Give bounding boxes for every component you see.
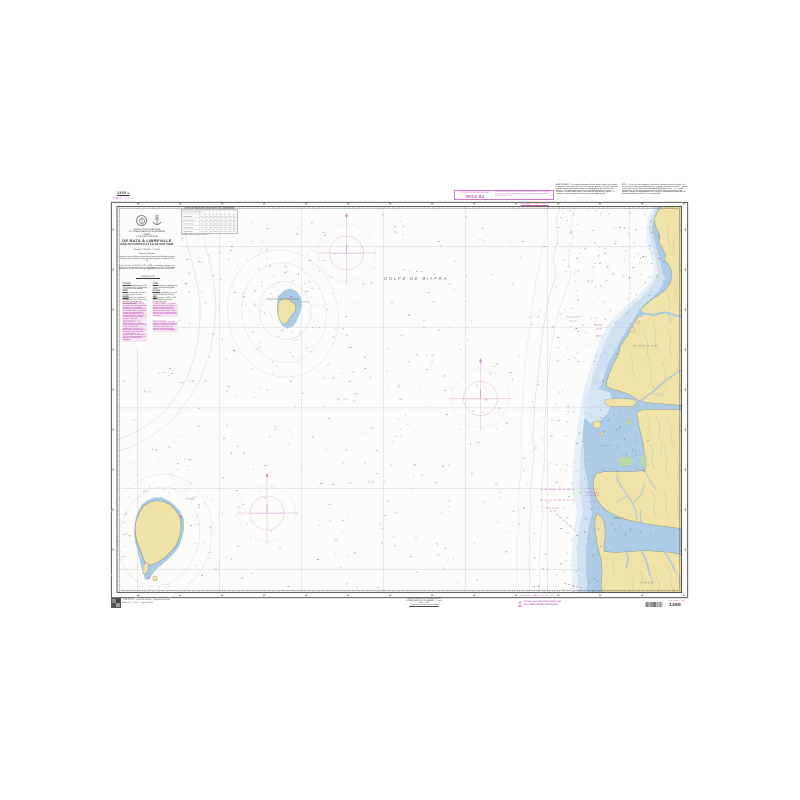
svg-text:GOLFE DE BIAFRA: GOLFE DE BIAFRA	[384, 276, 448, 281]
svg-text:S. TOME: S. TOME	[186, 499, 195, 501]
svg-text:GUINEE EQUAT.: GUINEE EQUAT.	[633, 345, 660, 348]
svg-text:Acces au port: Acces au port	[545, 507, 559, 510]
svg-text:HEURES ET HAUTEURS DE LA PLEIN: HEURES ET HAUTEURS DE LA PLEINE ET DE LA…	[185, 207, 235, 210]
svg-text:Zone d attente: Zone d attente	[586, 492, 600, 495]
svg-text:Mouillage: Mouillage	[594, 325, 603, 327]
svg-text:GABON: GABON	[640, 582, 654, 585]
svg-text:Zone a eviter: Zone a eviter	[567, 316, 579, 319]
svg-text:Les heures sont en temps unive: Les heures sont en temps universel (TU)	[181, 234, 209, 237]
svg-text:I. do Principe: I. do Principe	[298, 302, 311, 304]
svg-text:Mbini: Mbini	[642, 257, 647, 259]
svg-text:Attente: Attente	[596, 335, 603, 338]
svg-text:voir note: voir note	[549, 510, 558, 513]
svg-text:interdit: interdit	[596, 328, 602, 331]
svg-text:voir note: voir note	[569, 320, 578, 323]
svg-text:LIBREVILLE: LIBREVILLE	[612, 518, 624, 520]
